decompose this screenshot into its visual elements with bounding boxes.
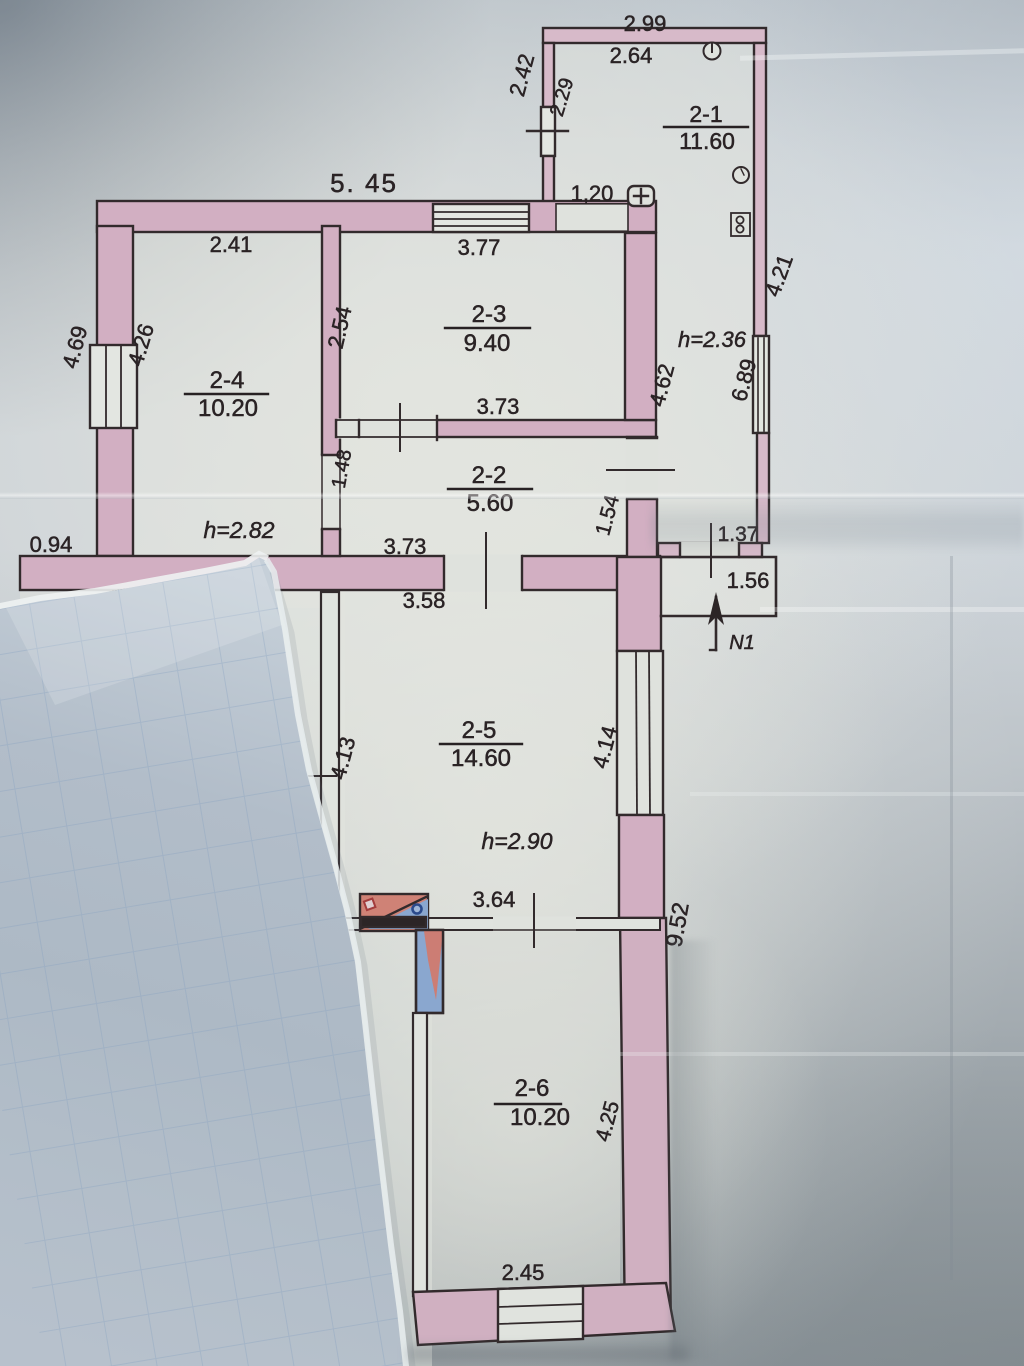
svg-text:5.60: 5.60	[467, 490, 514, 517]
svg-text:2-5: 2-5	[462, 717, 497, 744]
svg-text:h=2.82: h=2.82	[204, 517, 275, 543]
svg-text:2-6: 2-6	[515, 1075, 550, 1102]
svg-text:3.73: 3.73	[384, 534, 427, 559]
svg-text:1.56: 1.56	[727, 568, 770, 593]
svg-text:3.64: 3.64	[473, 887, 516, 912]
svg-text:3.77: 3.77	[458, 235, 501, 260]
svg-text:2-3: 2-3	[472, 301, 507, 328]
svg-text:2-4: 2-4	[210, 367, 245, 394]
svg-text:9.52: 9.52	[660, 900, 693, 949]
svg-text:4.69: 4.69	[57, 323, 92, 371]
svg-text:2.99: 2.99	[624, 11, 667, 36]
svg-text:N1: N1	[729, 632, 755, 654]
svg-text:2.64: 2.64	[610, 43, 653, 68]
svg-text:2-1: 2-1	[689, 101, 722, 127]
svg-text:5. 45: 5. 45	[330, 168, 398, 198]
svg-text:3.58: 3.58	[403, 588, 446, 613]
svg-text:2.41: 2.41	[210, 232, 253, 257]
svg-text:2.45: 2.45	[502, 1260, 545, 1285]
svg-text:1.37: 1.37	[718, 523, 759, 546]
svg-text:2-2: 2-2	[472, 462, 507, 489]
svg-text:3.73: 3.73	[477, 394, 520, 419]
svg-text:1,20: 1,20	[571, 181, 614, 206]
svg-text:2.42: 2.42	[504, 51, 539, 99]
svg-text:11.60: 11.60	[679, 128, 735, 154]
svg-text:h=2.90: h=2.90	[482, 828, 553, 854]
svg-text:14.60: 14.60	[451, 745, 511, 772]
svg-text:10.20: 10.20	[198, 395, 258, 422]
svg-text:0.94: 0.94	[30, 532, 73, 557]
svg-text:h=2.36: h=2.36	[678, 327, 747, 352]
svg-text:10.20: 10.20	[510, 1104, 570, 1131]
svg-text:9.40: 9.40	[464, 330, 511, 357]
